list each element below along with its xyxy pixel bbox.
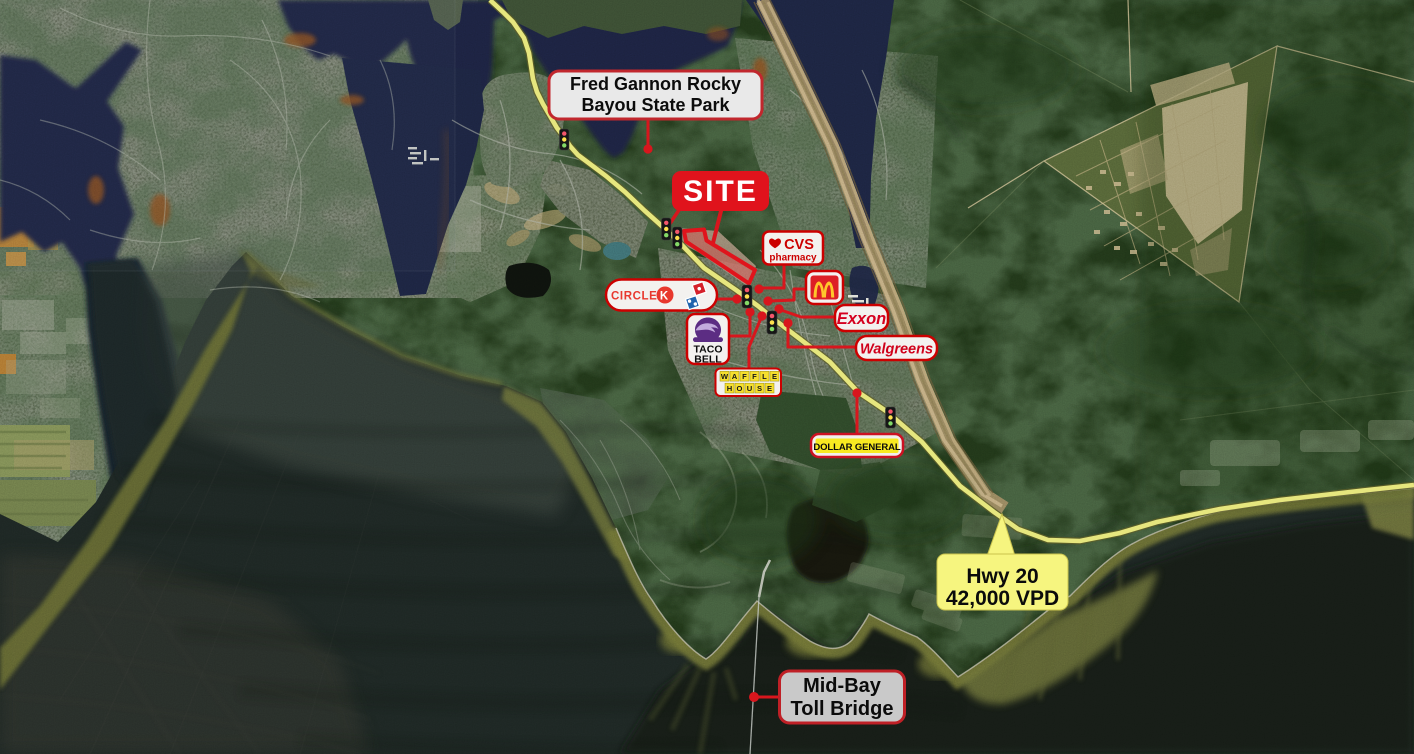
svg-text:F: F bbox=[742, 372, 747, 381]
svg-text:F: F bbox=[752, 372, 757, 381]
svg-text:Walgreens: Walgreens bbox=[860, 342, 933, 358]
svg-text:CVS: CVS bbox=[784, 237, 814, 253]
svg-text:Toll Bridge: Toll Bridge bbox=[791, 698, 894, 720]
svg-text:S: S bbox=[757, 384, 762, 393]
svg-text:BELL: BELL bbox=[694, 354, 722, 366]
svg-text:Hwy 20: Hwy 20 bbox=[966, 565, 1038, 588]
svg-text:L: L bbox=[762, 372, 767, 381]
svg-text:Mid-Bay: Mid-Bay bbox=[803, 675, 882, 697]
svg-text:E: E bbox=[767, 384, 772, 393]
svg-text:pharmacy: pharmacy bbox=[769, 253, 817, 264]
svg-text:H: H bbox=[727, 384, 732, 393]
svg-text:K: K bbox=[660, 290, 669, 302]
svg-text:W: W bbox=[721, 372, 729, 381]
svg-text:SITE: SITE bbox=[683, 175, 758, 208]
svg-text:CIRCLE: CIRCLE bbox=[611, 291, 657, 303]
svg-text:O: O bbox=[737, 384, 743, 393]
svg-text:Exxon: Exxon bbox=[837, 310, 887, 328]
svg-text:42,000 VPD: 42,000 VPD bbox=[946, 587, 1059, 610]
svg-text:E: E bbox=[772, 372, 777, 381]
svg-text:A: A bbox=[732, 372, 738, 381]
svg-text:Fred Gannon Rocky: Fred Gannon Rocky bbox=[570, 74, 741, 94]
svg-text:DOLLAR GENERAL: DOLLAR GENERAL bbox=[813, 442, 901, 453]
svg-text:Bayou State Park: Bayou State Park bbox=[581, 95, 730, 115]
svg-text:U: U bbox=[747, 384, 753, 393]
